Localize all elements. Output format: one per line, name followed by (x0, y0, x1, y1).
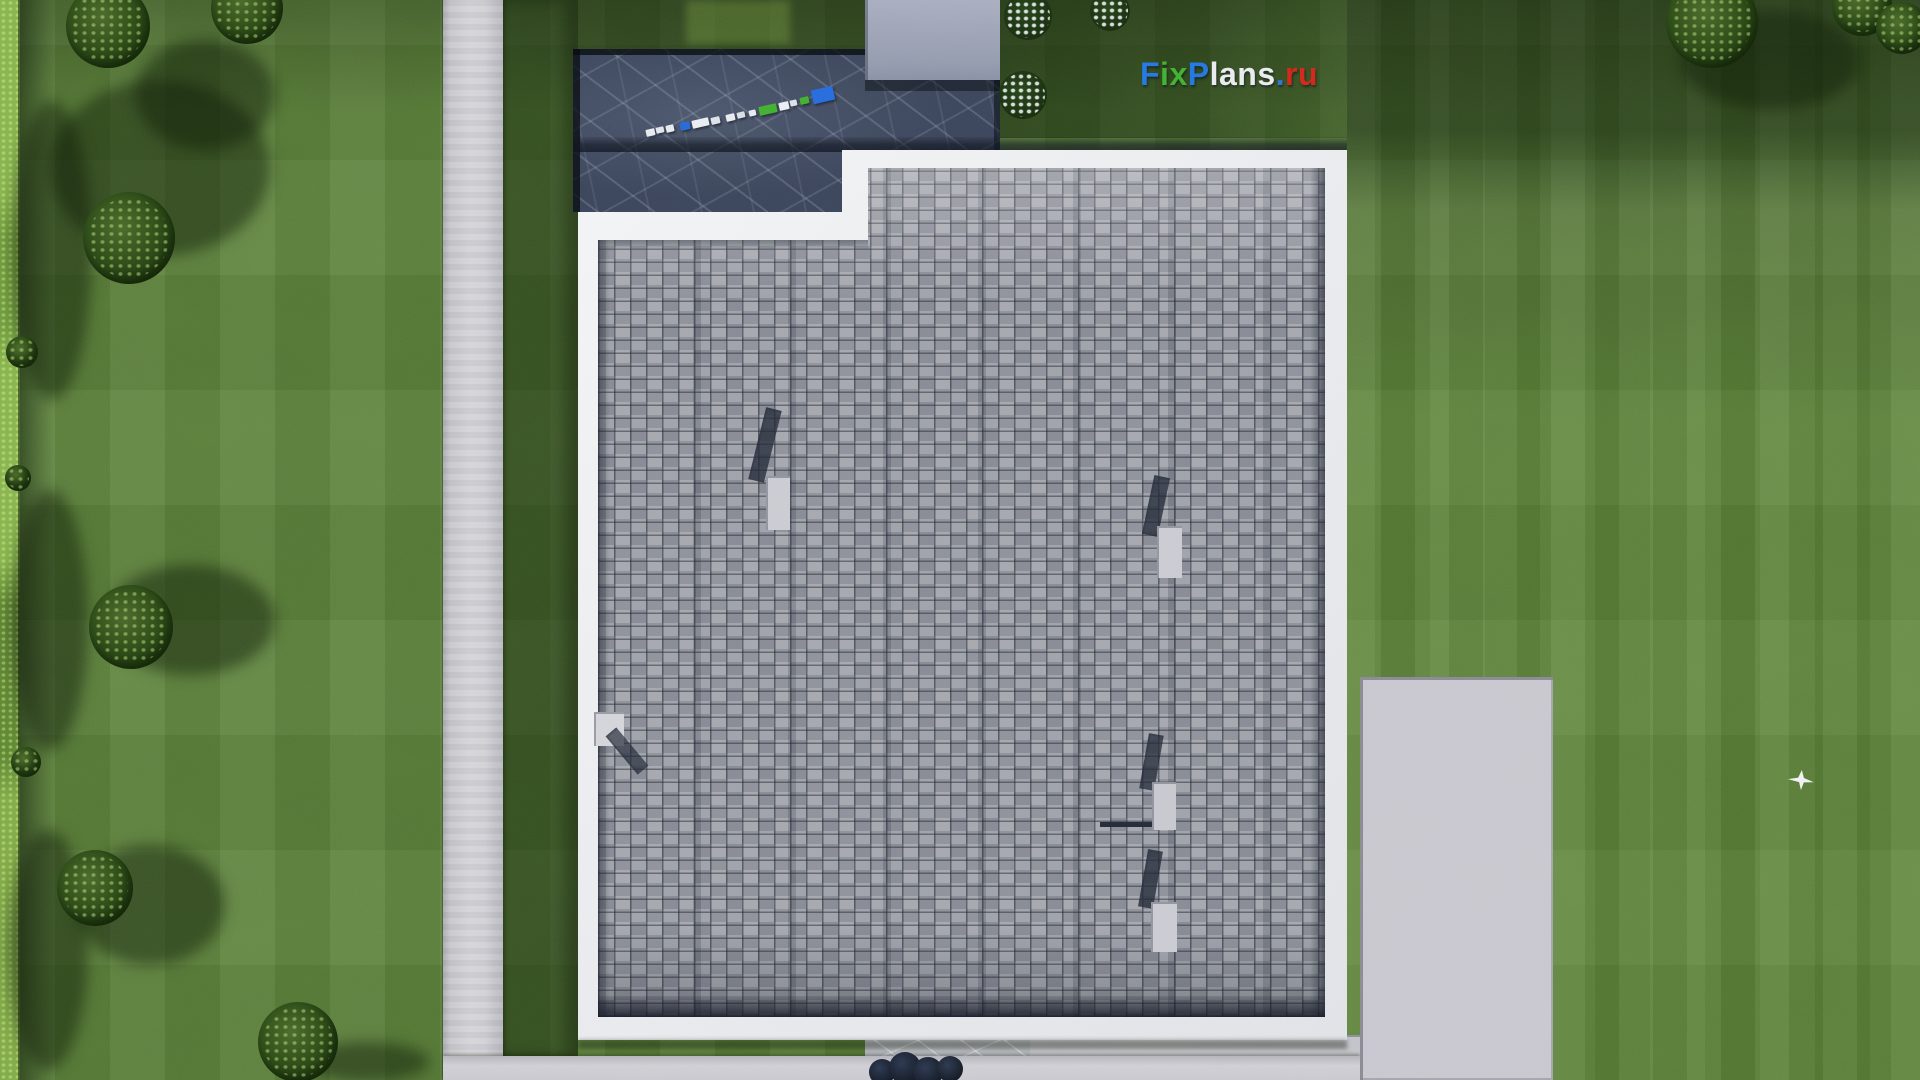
shadow-line-above-parapet (573, 137, 1347, 152)
concrete-path-vertical (443, 0, 503, 1080)
chimney-box (766, 476, 790, 530)
wm-ru: ru (1285, 56, 1318, 92)
fixplans-watermark: FixPlans.ru (1140, 55, 1370, 95)
entry-pad-shadow (865, 80, 1000, 91)
hedge-bush (6, 336, 38, 368)
chimney-box (1157, 526, 1182, 578)
chimney-box (1151, 902, 1177, 952)
hedge-bush (11, 747, 41, 777)
tree (1876, 2, 1920, 54)
house-cast-shadow (578, 1040, 1347, 1049)
tree-shadow (135, 40, 275, 150)
flat-shingle-roof (598, 168, 1325, 1017)
entry-pad-top (865, 0, 1000, 80)
hedge-shadow-blob (12, 490, 88, 750)
wm-P: P (1188, 56, 1210, 92)
tree (57, 850, 133, 926)
tree (83, 192, 175, 284)
vent-box (1152, 782, 1176, 830)
roof-inner-shadow (1310, 168, 1325, 1017)
concrete-patio-right (1360, 677, 1553, 1080)
hedge-bush (5, 465, 31, 491)
flowering-bush (999, 71, 1047, 119)
wm-ix: ix (1160, 56, 1188, 92)
wm-lans: lans (1210, 56, 1276, 92)
shadow-grass-left-of-house (503, 0, 578, 1056)
aerial-site-render: FixPlans.ru (0, 0, 1920, 1080)
roof-inner-shadow (598, 996, 1325, 1017)
roof-inner-shadow (598, 240, 610, 1017)
wm-dot: . (1276, 56, 1285, 92)
tree (89, 585, 173, 669)
tree (258, 1002, 338, 1080)
sunlit-grass-patch (686, 0, 790, 44)
wm-F: F (1140, 56, 1160, 92)
terrace-edge (573, 49, 865, 55)
terrace-edge (573, 49, 580, 212)
roof-inner-shadow (598, 240, 868, 250)
dark-bush (937, 1056, 963, 1080)
